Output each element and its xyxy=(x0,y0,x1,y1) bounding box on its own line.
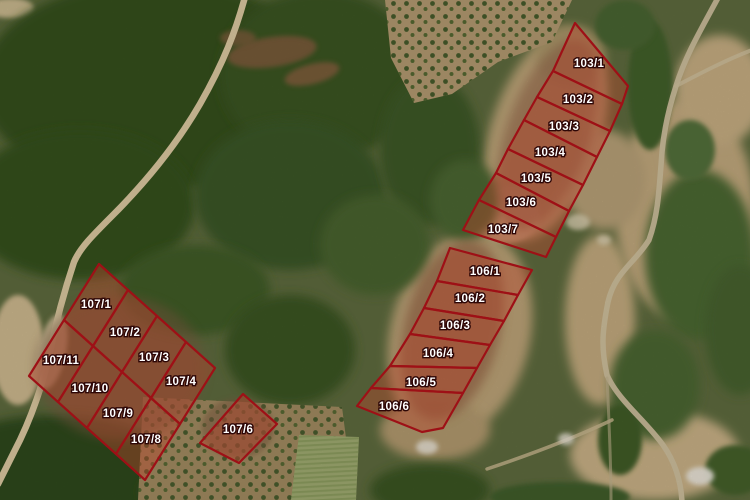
parcel-label-106/2: 106/2 xyxy=(455,293,485,305)
parcel-label-106/1: 106/1 xyxy=(470,266,501,278)
parcel-label-103/3: 103/3 xyxy=(549,121,579,133)
parcel-label-103/7: 103/7 xyxy=(488,224,518,236)
parcel-label-103/5: 103/5 xyxy=(521,173,552,185)
parcel-label-103/6: 103/6 xyxy=(506,197,536,209)
parcel-label-107/6: 107/6 xyxy=(223,424,253,436)
parcel-label-103/4: 103/4 xyxy=(535,147,566,159)
parcel-label-106/6: 106/6 xyxy=(379,401,409,413)
parcel-label-106/3: 106/3 xyxy=(440,320,470,332)
parcel-label-103/2: 103/2 xyxy=(563,94,593,106)
parcel-label-107/1: 107/1 xyxy=(81,299,112,311)
parcel-label-107/8: 107/8 xyxy=(131,434,162,446)
parcel-label-107/3: 107/3 xyxy=(139,352,169,364)
parcel-label-107/10: 107/10 xyxy=(72,383,109,395)
map-canvas: 103/1103/2103/3103/4103/5103/6103/7106/1… xyxy=(0,0,750,500)
parcel-label-103/1: 103/1 xyxy=(574,58,605,70)
parcel-label-107/11: 107/11 xyxy=(43,355,80,367)
satellite-map: 103/1103/2103/3103/4103/5103/6103/7106/1… xyxy=(0,0,750,500)
parcel-label-106/4: 106/4 xyxy=(423,348,454,360)
parcel-label-107/2: 107/2 xyxy=(110,327,140,339)
parcel-label-107/9: 107/9 xyxy=(103,408,133,420)
parcel-label-106/5: 106/5 xyxy=(406,377,437,389)
parcel-label-107/4: 107/4 xyxy=(166,376,197,388)
